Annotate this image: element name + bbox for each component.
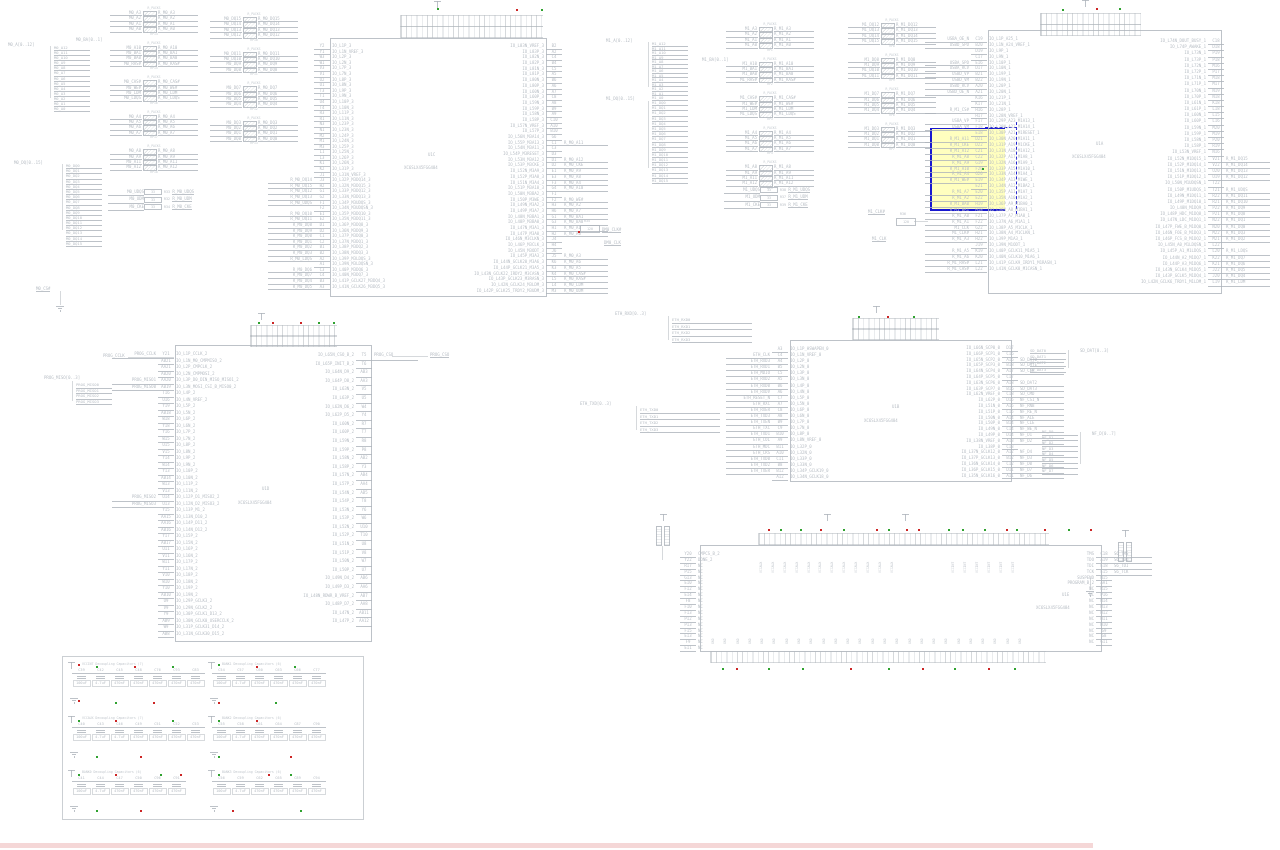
net-label[interactable]: ETH_RXD3 — [672, 337, 752, 344]
capacitor[interactable]: C39100uF — [72, 668, 91, 687]
erc-marker-dot — [962, 529, 964, 531]
gnd-pin-label: GND — [859, 624, 862, 644]
cap-group-title: BANK2 Decoupling Capacitors (6) — [222, 716, 326, 720]
wire — [60, 291, 61, 305]
series-resistor[interactable]: M0_UDM 33 R32 R_M0_UDM — [108, 195, 226, 202]
power-symbol — [434, 1, 441, 8]
pin-row[interactable]: IO_L48P_D7_2AA8 — [258, 600, 418, 609]
erc-marker-dot — [294, 666, 296, 668]
erc-marker-dot — [172, 720, 174, 722]
erc-marker-dot — [232, 810, 234, 812]
bus-label-m0-a[interactable]: M0_A[0..12] — [8, 42, 35, 47]
capacitor-icon — [212, 728, 231, 734]
power-symbol — [208, 770, 215, 777]
u1e-vccint-pins: VCCINTVCCINTVCCINTVCCINTVCCINTVCCINT — [952, 549, 1016, 573]
gnd-pin-label: GND — [823, 624, 826, 644]
erc-marker-dot — [290, 774, 292, 776]
erc-marker-dot — [954, 668, 956, 670]
capacitor-icon — [148, 728, 167, 734]
erc-marker-dot — [768, 668, 770, 670]
u1e-left-pins: Y20CMPCS_B_2 Y22DONE_2 R17NC P15NC G13NC… — [640, 551, 770, 651]
capacitor[interactable]: C77470nF — [307, 668, 326, 687]
net-label[interactable]: ETH_RXD2 — [672, 330, 752, 337]
cap-group-title: VCCINT Decoupling Capacitors (7) — [82, 662, 205, 666]
capacitor-icon — [72, 728, 91, 734]
pin-row[interactable]: IO_L58N_2AB2 — [258, 454, 418, 463]
m0-series-resistors: M0_UDQS 33 R33 R_M0_UDQS M0_UDM 33 R32 R… — [108, 188, 226, 210]
ground-symbol — [70, 752, 78, 758]
gnd-pin-label: GND — [810, 624, 813, 644]
net-label[interactable]: ETH_TXD3 — [640, 427, 720, 434]
net-label[interactable]: ETH_RXD0 — [672, 317, 752, 324]
wire — [392, 356, 428, 357]
bus-label-m1-a[interactable]: M1_A[0..12] — [606, 38, 633, 43]
resistor-value: 33 — [144, 204, 162, 210]
pin-row[interactable]: NCG11 — [1010, 639, 1152, 645]
gnd-pin-label: GND — [909, 624, 912, 644]
pin-row[interactable]: IO_L54P_2T8 — [258, 497, 418, 506]
erc-marker-dot — [922, 668, 924, 670]
erc-marker-dot — [578, 231, 580, 233]
bus-fanline — [62, 164, 63, 230]
net-label[interactable]: M1_DQ15 — [652, 179, 688, 184]
capacitor[interactable]: C62470nF — [250, 776, 269, 795]
capacitor[interactable]: C83470nF — [186, 668, 205, 687]
erc-marker-dot — [736, 668, 738, 670]
u1b-left-pins: A3IO_L1P_HSWAPEN_0 ETH_CLKC4IO_L1N_VREF_… — [726, 346, 896, 480]
gnd-pin-label: GND — [896, 624, 899, 644]
vccint-pin-label: VCCINT — [976, 549, 979, 573]
capacitor[interactable]: C51470nF — [148, 722, 167, 741]
pin-row[interactable]: IO_L57N_2AB4 — [258, 471, 418, 480]
net-label[interactable]: ETH_TXD0 — [640, 407, 720, 414]
capacitor[interactable]: C47470nF — [110, 776, 129, 795]
series-resistor[interactable]: M1_UDQS 33 R38 R_M1_UDQS — [724, 186, 842, 193]
u1b-top-pin-strip — [852, 328, 939, 340]
bus-label-m0-dq[interactable]: M0_DQ[0..15] — [14, 160, 43, 165]
pin-row[interactable]: IO_L64N_D9_2AB3 — [258, 368, 418, 377]
resistor-pack[interactable]: R_PACKS M0_A8R_M0_A8 M0_A9R_M0_A9 M0_A11… — [110, 144, 198, 174]
erc-marker-dot — [218, 720, 220, 722]
pin-row[interactable]: IO_L59N_2R8 — [258, 437, 418, 446]
erc-marker-dot — [78, 700, 80, 702]
erc-marker-dot — [115, 774, 117, 776]
bus-fanline — [50, 46, 51, 98]
r36-refdes: R36 — [900, 212, 906, 216]
pin-row[interactable]: IO_L62N_D6_2W4 — [258, 403, 418, 412]
resistor-pack[interactable]: R_PACKS M1_DQ7R_M1_DQ7 M1_DQ6R_M1_DQ6 M1… — [848, 87, 936, 117]
power-symbol — [208, 716, 215, 723]
erc-marker-dot — [1006, 529, 1008, 531]
erc-marker-dot — [820, 529, 822, 531]
erc-marker-dot — [1119, 8, 1121, 10]
net-dm0-clk[interactable]: DM0_CLK — [604, 240, 621, 246]
resistor-r36[interactable]: 120 — [896, 218, 916, 226]
vccaux-pin-label: VCCAUX — [879, 549, 882, 573]
capacitor[interactable]: C464.7uF — [110, 722, 129, 741]
erc-marker-dot — [858, 316, 860, 318]
bus-label-sd-dat[interactable]: SD_DAT[0..3] — [1080, 348, 1109, 353]
erc-marker-dot — [850, 668, 852, 670]
erc-marker-dot — [172, 666, 174, 668]
capacitor-icon — [129, 782, 148, 788]
pin-row[interactable]: IO_L57P_2AA4 — [258, 480, 418, 489]
capacitor-icon — [307, 728, 326, 734]
vccaux-pin-label: VCCAUX — [796, 549, 799, 573]
resistor-value: 33 — [760, 195, 778, 201]
resistor-r35[interactable]: 120 — [580, 225, 600, 233]
net-label[interactable]: M0_A0 — [54, 107, 90, 112]
pin-row[interactable]: IO_L49P_D3_2AA6 — [258, 583, 418, 592]
erc-marker-dot — [258, 322, 260, 324]
bus-label-prog-miso[interactable]: PROG_MISO[0..3] — [44, 375, 80, 380]
pin-row[interactable]: IO_L59P_2P8 — [258, 446, 418, 455]
pin-row[interactable]: IO_L47N_2AB11 — [258, 609, 418, 618]
capacitor[interactable]: C52470nF — [167, 722, 186, 741]
capacitor-icon — [231, 782, 250, 788]
pin-row[interactable]: IO_L51P_2V8 — [258, 549, 418, 558]
pin-row[interactable]: IO_L63N_2V5 — [258, 385, 418, 394]
capacitor-icon — [72, 782, 91, 788]
erc-marker-dot — [913, 316, 915, 318]
bus-merge-sd: SD_DAT0SD_DAT1SD_DAT2SD_DAT3 — [1030, 348, 1066, 373]
erc-marker-dot — [78, 664, 80, 666]
series-resistor[interactable]: M0_CKE 33 R34 R_M0_CKE — [108, 203, 226, 210]
capacitor-icon — [307, 782, 326, 788]
power-symbol — [660, 514, 667, 521]
erc-marker-dot — [1062, 9, 1064, 11]
resistor-pack[interactable]: R_PACKS M0_A4R_M0_A4 M0_A5R_M0_A5 M0_A6R… — [110, 110, 198, 140]
m1-series-resistors: M1_UDQS 33 R38 R_M1_UDQS M1_UDM 33 R37 R… — [724, 186, 842, 208]
cap-group-vccint: VCCINT Decoupling Capacitors (7) C39100u… — [72, 662, 205, 687]
u1e-right-pins: TMSC18S6_TMS TDOA19S6_TDO TDIE18S6_TDI T… — [1010, 551, 1152, 645]
capacitor[interactable]: C63470nF — [269, 668, 288, 687]
resistor-pack[interactable]: R_PACKS M1_DQ12R_M1_DQ12 M1_DQ13R_M1_DQ1… — [848, 18, 936, 48]
capacitor[interactable]: C574.7uF — [231, 668, 250, 687]
bus-fanline — [1068, 350, 1069, 368]
pin-row[interactable]: A12IO_L34N_GCLK18_0 — [726, 474, 896, 480]
net-label[interactable]: NF_D7 — [1042, 469, 1078, 475]
cap-group-title: BANK3 Decoupling Capacitors (6) — [222, 770, 326, 774]
bus-label-eth-rxd[interactable]: ETH_RXD[0..3] — [615, 311, 646, 316]
erc-marker-dot — [888, 668, 890, 670]
capacitor-icon — [269, 674, 288, 680]
cap-group-bank1: BANK1 Decoupling Capacitors (6) C54100uF… — [212, 662, 326, 687]
vccaux-pin-label: VCCAUX — [819, 549, 822, 573]
resistor-value: 33 — [760, 187, 778, 193]
erc-marker-dot — [218, 702, 220, 704]
gnd-pin-label: GND — [847, 624, 850, 644]
erc-marker-dot — [256, 720, 258, 722]
cap-group-bank0: BANK0 Decoupling Capacitors (6) C41100uF… — [72, 770, 186, 795]
gnd-pin-label: GND — [786, 624, 789, 644]
resistor-pack[interactable]: R_PACKS M1_DQ8R_M1_DQ8 M1_DQ9R_M1_DQ9 M1… — [848, 53, 936, 83]
resistor-pack[interactable]: R_PACKS M0_CAS#R_M0_CAS# M0_WE#R_M0_WE# … — [110, 75, 198, 105]
erc-marker-dot — [140, 756, 142, 758]
bus-label-m1-ba[interactable]: M1_BA[0..1] — [702, 57, 729, 62]
capacitor[interactable]: C45470nF — [110, 668, 129, 687]
capacitor[interactable]: C49470nF — [129, 722, 148, 741]
erc-marker-dot — [1068, 529, 1070, 531]
gnd-pin-label: GND — [982, 624, 985, 644]
bus-fanline — [648, 101, 649, 168]
erc-marker-dot — [906, 529, 908, 531]
ground-symbol — [210, 806, 218, 812]
capacitor[interactable]: C66470nF — [288, 668, 307, 687]
erc-marker-dot — [115, 702, 117, 704]
gnd-pin-label: GND — [970, 624, 973, 644]
bus-label-m1-dq[interactable]: M1_DQ[0..15] — [606, 96, 635, 101]
erc-marker-dot — [153, 702, 155, 704]
gnd-pin-label: GND — [933, 624, 936, 644]
capacitor-icon — [129, 674, 148, 680]
capacitor[interactable]: C65470nF — [269, 776, 288, 795]
capacitor[interactable]: C41100uF — [72, 776, 91, 795]
capacitor[interactable]: C76470nF — [148, 668, 167, 687]
u1c-top-pin-strip — [400, 26, 543, 38]
capacitor[interactable]: C94470nF — [307, 776, 326, 795]
capacitor[interactable]: C40100uF — [72, 722, 91, 741]
power-symbol — [68, 716, 75, 723]
pin-row[interactable]: IO_L49N_D4_2AB6 — [258, 574, 418, 583]
capacitor[interactable]: C55100uF — [212, 722, 231, 741]
bus-fanline — [668, 316, 669, 340]
capacitor-icon — [288, 674, 307, 680]
bus-fanline — [636, 406, 637, 430]
pin-row[interactable]: IO_L63P_2U5 — [258, 394, 418, 403]
capacitor[interactable]: C424.7uF — [91, 668, 110, 687]
erc-marker-dot — [78, 774, 80, 776]
power-symbol — [1122, 530, 1129, 537]
gnd-pin-label: GND — [773, 624, 776, 644]
wire — [1090, 578, 1091, 590]
vccaux-pin-label: VCCAUX — [843, 549, 846, 573]
capacitor-icon — [250, 674, 269, 680]
pin-row[interactable]: IO_L65P_INIT_B_2T6 — [258, 360, 418, 369]
gnd-pin-label: GND — [994, 624, 997, 644]
erc-marker-dot — [275, 702, 277, 704]
capacitor[interactable]: C444.7uF — [91, 776, 110, 795]
pin-row[interactable]: IO_L42N_GCLK6_TRDY1_M1LDM_1L19R_M1_LDM — [1108, 279, 1270, 285]
erc-marker-dot — [800, 529, 802, 531]
vccaux-pin-label: VCCAUX — [855, 549, 858, 573]
pin-row[interactable]: AB8IO_L31N_GCLK30_D15_2 — [112, 631, 287, 638]
capacitor[interactable]: C53470nF — [186, 722, 205, 741]
erc-marker-dot — [802, 668, 804, 670]
m0-resistor-packs-col1: R_PACKS M0_A3R_M0_A3 M0_A2R_M0_A2 M0_A1R… — [110, 6, 198, 174]
ground-symbol — [70, 806, 78, 812]
capacitor-icon — [91, 728, 110, 734]
bus-label-nf-d[interactable]: NF_D[0..7] — [1092, 431, 1116, 436]
vccaux-pin-label: VCCAUX — [867, 549, 870, 573]
net-label-m0-cs[interactable]: M0_CS# — [36, 286, 50, 292]
capacitor[interactable]: C48470nF — [129, 668, 148, 687]
erc-marker-dot — [333, 322, 335, 324]
capacitor-icon — [72, 674, 91, 680]
pin-row[interactable]: IO_L52P_2T10 — [258, 531, 418, 540]
erc-marker-dot — [1090, 529, 1092, 531]
pin-row[interactable]: R_M1_CAS#L22IO_L41N_GCLK8_M1CASN_1 — [925, 266, 1110, 272]
net-dm0-clkn[interactable]: DM0_CLK# — [602, 227, 621, 233]
pin-row[interactable]: IO_L50P_2U7 — [258, 566, 418, 575]
r35-refdes: R35 — [584, 219, 590, 223]
capacitor[interactable]: C93470nF — [167, 668, 186, 687]
vccaux-pin-label: VCCAUX — [831, 549, 834, 573]
capacitor[interactable]: C89470nF — [288, 776, 307, 795]
series-resistor[interactable]: M0_UDQS 33 R33 R_M0_UDQS — [108, 188, 226, 195]
pin-row[interactable]: IO_L42P_GCLK25_TRDY2_M3UDM_3M3R_M0_UDM — [430, 288, 608, 294]
net-label[interactable]: PROG_MISO3 — [76, 400, 112, 406]
vccaux-pin-label: VCCAUX — [784, 549, 787, 573]
capacitor-icon — [212, 782, 231, 788]
net-m1-clkn[interactable]: M1_CLK# — [868, 209, 885, 215]
capacitor[interactable]: C87470nF — [288, 722, 307, 741]
ground-symbol — [210, 752, 218, 758]
resistor-pack[interactable]: R_PACKS M1_A4R_M1_A4 M1_A5R_M1_A5 M1_A6R… — [726, 126, 814, 156]
u1e-bottom-pin-strip — [710, 651, 1046, 663]
capacitor-icon — [186, 728, 205, 734]
pin-row[interactable]: IO_L51N_2U8 — [258, 540, 418, 549]
capacitor[interactable]: C64470nF — [269, 722, 288, 741]
ground-symbol — [70, 698, 78, 704]
cap-group-title: BANK0 Decoupling Capacitors (6) — [82, 770, 186, 774]
bus-fan-m1-dq: M1_DQ0M1_DQ1M1_DQ2M1_DQ3M1_DQ4M1_DQ5M1_D… — [652, 101, 688, 184]
cap-group-bank2: BANK2 Decoupling Capacitors (6) C55100uF… — [212, 716, 326, 741]
net-label[interactable]: ETH_TXD1 — [640, 414, 720, 421]
erc-marker-dot — [140, 810, 142, 812]
capacitor[interactable]: C50470nF — [129, 776, 148, 795]
vccaux-pin-label: VCCAUX — [891, 549, 894, 573]
erc-marker-dot — [180, 774, 182, 776]
erc-marker-dot — [768, 529, 770, 531]
pin-row[interactable]: IO_L64P_D8_2AA3 — [258, 377, 418, 386]
erc-marker-dot — [134, 666, 136, 668]
erc-marker-dot — [780, 529, 782, 531]
capacitor-icon — [167, 728, 186, 734]
power-symbol — [258, 313, 265, 320]
net-label[interactable]: SD_DAT3 — [1030, 367, 1066, 373]
capacitor-icon — [91, 674, 110, 680]
pin-row[interactable]: R_M0_DQ5A3IO_L41N_GCLK26_M3DQ5_3 — [268, 284, 448, 290]
pin-row[interactable]: IO_L53P_2W6 — [258, 514, 418, 523]
erc-marker-dot — [982, 168, 984, 170]
resistor-pack[interactable]: R_PACKS M0_A3R_M0_A3 M0_A2R_M0_A2 M0_A1R… — [110, 6, 198, 36]
gnd-pin-label: GND — [921, 624, 924, 644]
capacitor[interactable]: C434.7uF — [91, 722, 110, 741]
gnd-pin-label: GND — [872, 624, 875, 644]
pin-row[interactable]: IO_L52N_2U10 — [258, 523, 418, 532]
pin-row[interactable]: IO_L48N_RDWR_B_VREF_2AB7 — [258, 592, 418, 601]
pin-row[interactable]: IO_L60P_2T7 — [258, 428, 418, 437]
bus-fanline — [1080, 432, 1081, 464]
capacitor-icon — [167, 674, 186, 680]
gnd-pin-label: GND — [835, 624, 838, 644]
power-symbol — [824, 514, 831, 521]
bus-label-eth-txd[interactable]: ETH_TXD[0..3] — [580, 401, 611, 406]
cap-group-title: VCCAUX Decoupling Capacitors (7) — [82, 716, 205, 720]
series-resistor[interactable]: M1_UDM 33 R37 R_M1_UDM — [724, 193, 842, 200]
pin-row[interactable]: E11NC — [640, 645, 770, 651]
pin-row[interactable]: IO_L53N_2Y6 — [258, 506, 418, 515]
gnd-pin-label: GND — [958, 624, 961, 644]
capacitor[interactable]: C91470nF — [167, 776, 186, 795]
capacitor[interactable]: C90470nF — [307, 722, 326, 741]
erc-marker-dot — [218, 774, 220, 776]
erc-marker-dot — [1016, 529, 1018, 531]
net-prog-cso[interactable]: PROG_CSO — [430, 352, 449, 358]
capacitor-icon — [250, 728, 269, 734]
capacitor-icon — [288, 728, 307, 734]
vccaux-pin-label: VCCAUX — [772, 549, 775, 573]
net-label[interactable]: M0_DQ15 — [66, 242, 102, 247]
capacitor[interactable]: C594.7uF — [231, 776, 250, 795]
capacitor-icon — [148, 674, 167, 680]
erc-marker-dot — [96, 666, 98, 668]
bus-fan-prog-miso: PROG_MISO0PROG_MISO1PROG_MISO2PROG_MISO3 — [76, 383, 112, 405]
net-label[interactable]: ETH_TXD2 — [640, 420, 720, 427]
pin-row[interactable]: IO_L47P_2AA12 — [258, 617, 418, 626]
erc-marker-dot — [887, 316, 889, 318]
power-symbol — [68, 662, 75, 669]
erc-marker-dot — [876, 529, 878, 531]
pin-row[interactable]: IO_L58P_2Y3 — [258, 463, 418, 472]
capacitor-icon — [231, 728, 250, 734]
erc-marker-dot — [541, 9, 543, 11]
pin-row[interactable]: IO_L54N_2AB5 — [258, 489, 418, 498]
resistor-pack[interactable]: R_PACKS M1_A3R_M1_A3 M1_A2R_M1_A2 M1_A1R… — [726, 22, 814, 52]
power-symbol — [68, 770, 75, 777]
net-label[interactable]: ETH_RXD1 — [672, 324, 752, 331]
capacitor[interactable]: C54100uF — [212, 668, 231, 687]
bus-fan-m0-a: M0_A12M0_A11M0_A10M0_A9M0_A8M0_A7M0_A6M0… — [54, 46, 90, 112]
capacitor[interactable]: C56100uF — [212, 776, 231, 795]
bus-label-m0-ba[interactable]: M0_BA[0..1] — [76, 37, 103, 42]
pin-row[interactable]: IO_L62P_D5_2Y4 — [258, 411, 418, 420]
pin-row[interactable]: IO_L35N_GCLK16_0A11NF_D6 — [900, 473, 1064, 479]
resistor-pack[interactable]: R_PACKS M0_A10R_M0_A10 M0_BA1R_M0_BA1 M0… — [110, 41, 198, 71]
resistor-pack[interactable]: R_PACKS M1_DQ3R_M1_DQ3 M1_DQ2R_M1_DQ2 M1… — [848, 122, 936, 152]
ground-symbol — [56, 306, 64, 312]
resistor-pack[interactable]: R_PACKS M1_CAS#R_M1_CAS# M1_WE#R_M1_WE# … — [726, 91, 814, 121]
capacitor[interactable]: C60470nF — [250, 668, 269, 687]
resistor-pack[interactable]: R_PACKS M0_DQ15R_M0_DQ15 M0_DQ14R_M0_DQ1… — [210, 12, 298, 42]
erc-marker-dot — [290, 756, 292, 758]
jtag-pullup-resistors[interactable] — [1118, 542, 1132, 562]
pin-row[interactable]: IO_L50N_2W7 — [258, 557, 418, 566]
resistor-value: 33 — [144, 197, 162, 203]
erc-marker-dot — [843, 529, 845, 531]
capacitor[interactable]: C61470nF — [250, 722, 269, 741]
power-symbol — [1082, 0, 1089, 7]
cap-group-vccaux: VCCAUX Decoupling Capacitors (7) C40100u… — [72, 716, 205, 741]
capacitor[interactable]: C96470nF — [148, 776, 167, 795]
capacitor-icon — [186, 674, 205, 680]
erc-marker-dot — [96, 756, 98, 758]
bus-fan-m1-a: M1_A12M1_A11M1_A10M1_A9M1_A8M1_A7M1_A6M1… — [652, 42, 688, 101]
capacitor-icon — [129, 728, 148, 734]
bus-fan-eth-txd: ETH_TXD0ETH_TXD1ETH_TXD2ETH_TXD3 — [640, 407, 720, 433]
capacitor-icon — [288, 782, 307, 788]
resistor-pack[interactable]: R_PACKS M1_A10R_M1_A10 M1_BA1R_M1_BA1 M1… — [726, 57, 814, 87]
capacitor-icon — [269, 728, 288, 734]
series-resistor[interactable]: M1_CKE 33 R39 R_M1_CKE — [724, 201, 842, 208]
pin-row[interactable]: IO_L60N_2R7 — [258, 420, 418, 429]
capacitor-icon — [167, 782, 186, 788]
pullup-resistors[interactable] — [656, 526, 670, 546]
capacitor-icon — [110, 728, 129, 734]
capacitor[interactable]: C584.7uF — [231, 722, 250, 741]
net-m1-clk[interactable]: M1_CLK — [872, 236, 886, 242]
